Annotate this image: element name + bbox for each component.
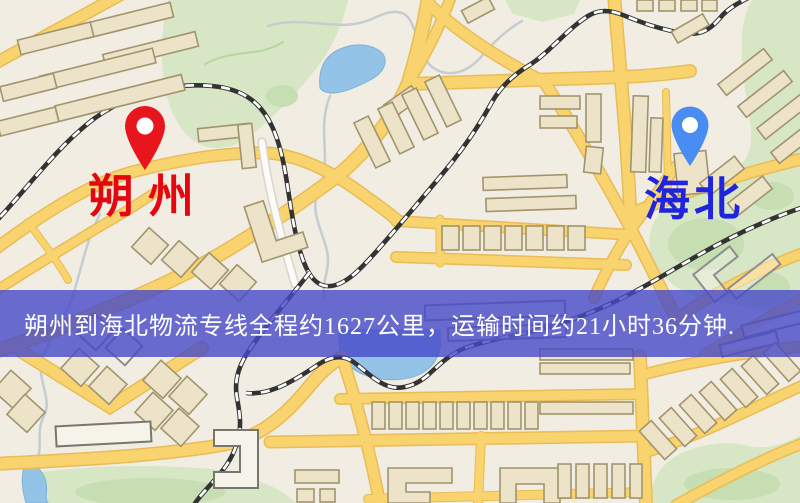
destination-pin-marker [668, 105, 712, 173]
route-info-banner: 朔州到海北物流专线全程约1627公里，运输时间约21小时36分钟. [0, 290, 800, 357]
route-info-text: 朔州到海北物流专线全程约1627公里，运输时间约21小时36分钟. [0, 306, 735, 341]
origin-city-label: 朔州 [88, 174, 208, 220]
origin-pin-marker [121, 104, 169, 177]
destination-city-label: 海北 [644, 177, 744, 223]
map-artwork [0, 0, 800, 503]
map-screenshot: 朔州 海北 朔州到海北物流专线全程约1627公里，运输时间约21小时36分钟. [0, 0, 800, 503]
